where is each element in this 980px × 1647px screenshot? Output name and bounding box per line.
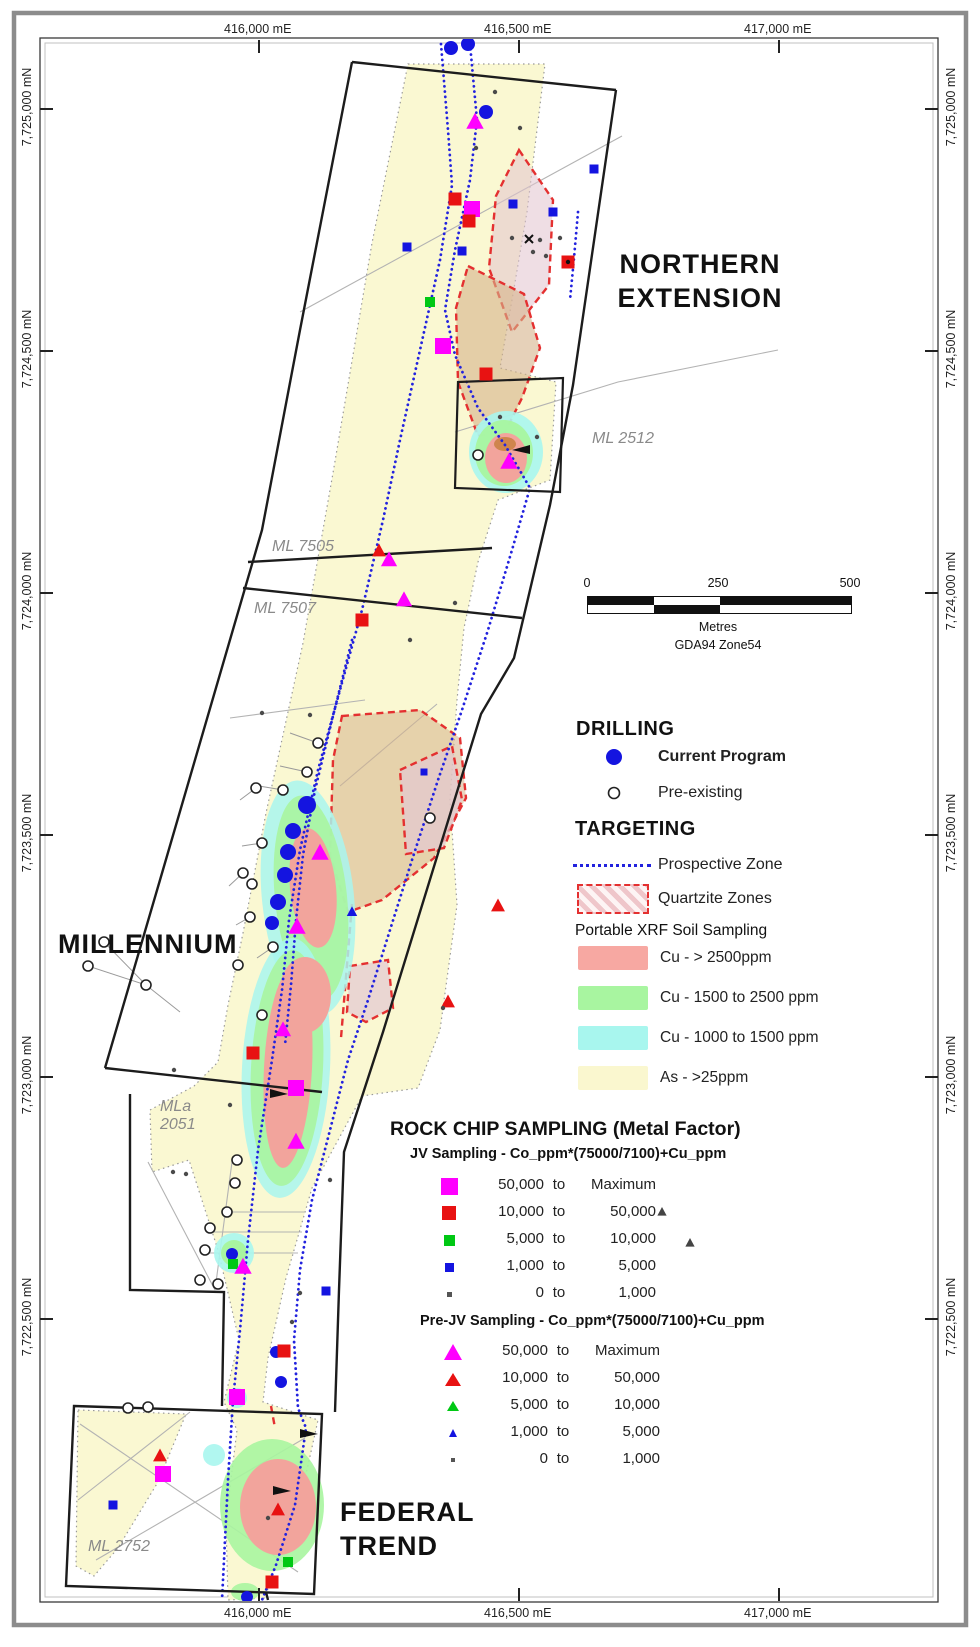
legend-soil-row: Cu - 1500 to 2500 ppm bbox=[578, 986, 898, 1012]
drillhole-preexisting bbox=[278, 785, 288, 795]
range-joiner: to bbox=[550, 1369, 576, 1386]
rock-chip-prejv-marker bbox=[685, 1238, 694, 1247]
top-easting-label: 416,500 mE bbox=[484, 22, 551, 36]
range-joiner: to bbox=[550, 1423, 576, 1440]
left-northing-tick bbox=[40, 834, 53, 836]
right-northing-label: 7,725,000 mN bbox=[944, 66, 958, 148]
low-grade-sample-marker bbox=[558, 236, 562, 240]
triangle-glyph bbox=[444, 1344, 462, 1360]
rock-chip-jv-marker bbox=[155, 1466, 171, 1482]
square-glyph bbox=[445, 1263, 454, 1272]
top-easting-tick bbox=[518, 40, 520, 53]
lease-label-ml7507: ML 7507 bbox=[254, 600, 316, 618]
drillhole-current bbox=[270, 894, 286, 910]
left-northing-label: 7,724,000 mN bbox=[20, 550, 34, 632]
exploration-map-figure: 416,000 mE416,000 mE416,500 mE416,500 mE… bbox=[0, 0, 980, 1647]
rock-chip-jv-marker bbox=[283, 1557, 293, 1567]
low-grade-sample-marker bbox=[308, 713, 312, 717]
lease-label-ml2512: ML 2512 bbox=[592, 430, 654, 448]
legend-square-row: 1,000to5,000 bbox=[432, 1255, 672, 1282]
drillhole-preexisting bbox=[232, 1155, 242, 1165]
rock-chip-jv-marker bbox=[435, 338, 451, 354]
drillhole-current bbox=[277, 867, 293, 883]
soil-swatch bbox=[578, 1026, 648, 1050]
square-glyph bbox=[447, 1292, 452, 1297]
range-min: 5,000 bbox=[468, 1230, 544, 1247]
drillhole-preexisting bbox=[230, 1178, 240, 1188]
rock-chip-jv-marker bbox=[480, 368, 493, 381]
lease-label-ml7505: ML 7505 bbox=[272, 538, 334, 556]
drillhole-preexisting bbox=[247, 879, 257, 889]
drillhole-current bbox=[241, 1591, 253, 1603]
legend-drilling-title: DRILLING bbox=[576, 718, 674, 741]
drillhole-current bbox=[280, 844, 296, 860]
left-northing-tick bbox=[40, 108, 53, 110]
drillhole-current bbox=[226, 1248, 238, 1260]
low-grade-sample-marker bbox=[172, 1068, 176, 1072]
legend-soil-row: As - >25ppm bbox=[578, 1066, 898, 1092]
rock-chip-jv-marker bbox=[322, 1287, 331, 1296]
range-max: 50,000 bbox=[578, 1369, 660, 1386]
right-northing-label: 7,723,000 mN bbox=[944, 1034, 958, 1116]
right-northing-label: 7,724,000 mN bbox=[944, 550, 958, 632]
low-grade-sample-marker bbox=[290, 1320, 294, 1324]
range-max: 50,000 bbox=[574, 1203, 656, 1220]
square-glyph bbox=[441, 1178, 458, 1195]
drillhole-preexisting bbox=[83, 961, 93, 971]
range-min: 0 bbox=[472, 1450, 548, 1467]
legend-soil-row: Cu - > 2500ppm bbox=[578, 946, 898, 972]
low-grade-sample-marker bbox=[184, 1172, 188, 1176]
triangle-glyph bbox=[445, 1373, 461, 1386]
drillhole-preexisting bbox=[205, 1223, 215, 1233]
rock-chip-jv-marker bbox=[403, 243, 412, 252]
low-grade-sample-marker bbox=[538, 238, 542, 242]
right-northing-label: 7,724,500 mN bbox=[944, 308, 958, 390]
square-glyph bbox=[442, 1206, 456, 1220]
legend-square-row: 50,000toMaximum bbox=[432, 1174, 672, 1201]
low-grade-sample-marker bbox=[171, 1170, 175, 1174]
left-northing-label: 7,725,000 mN bbox=[20, 66, 34, 148]
triangle-symbol bbox=[436, 1340, 470, 1364]
legend-jv-subtitle: JV Sampling - Co_ppm*(75000/7100)+Cu_ppm bbox=[410, 1146, 726, 1162]
soil-swatch bbox=[578, 986, 648, 1010]
triangle-symbol bbox=[436, 1421, 470, 1445]
range-max: 5,000 bbox=[578, 1423, 660, 1440]
square-symbol bbox=[432, 1255, 466, 1279]
low-grade-sample-marker bbox=[493, 90, 497, 94]
triangle-glyph bbox=[451, 1458, 455, 1462]
prospective-zone-symbol bbox=[573, 864, 651, 867]
square-glyph bbox=[444, 1235, 455, 1246]
legend-square-row: 5,000to10,000 bbox=[432, 1228, 672, 1255]
soil-swatch bbox=[578, 946, 648, 970]
rock-chip-jv-marker bbox=[421, 769, 428, 776]
low-grade-sample-marker bbox=[441, 1006, 445, 1010]
range-max: 10,000 bbox=[578, 1396, 660, 1413]
legend-quartzite-zones: Quartzite Zones bbox=[658, 890, 772, 908]
top-easting-label: 417,000 mE bbox=[744, 22, 811, 36]
rock-chip-jv-marker bbox=[463, 215, 476, 228]
range-max: 10,000 bbox=[574, 1230, 656, 1247]
triangle-symbol bbox=[436, 1448, 470, 1472]
right-northing-tick bbox=[925, 108, 938, 110]
rock-chip-jv-marker bbox=[229, 1389, 245, 1405]
drillhole-preexisting bbox=[251, 783, 261, 793]
low-grade-sample-marker bbox=[518, 126, 522, 130]
drillhole-current bbox=[298, 796, 316, 814]
scale-bar-graphic bbox=[587, 596, 852, 614]
range-joiner: to bbox=[550, 1450, 576, 1467]
rock-chip-jv-marker bbox=[266, 1576, 279, 1589]
preexisting-symbol bbox=[609, 788, 620, 799]
soil-swatch-label: Cu - 1500 to 2500 ppm bbox=[660, 989, 819, 1007]
drillhole-preexisting bbox=[473, 450, 483, 460]
rock-chip-jv-marker bbox=[288, 1080, 304, 1096]
low-grade-sample-marker bbox=[498, 415, 502, 419]
area-label-trend: TREND bbox=[340, 1530, 475, 1564]
area-label-millennium: MILLENNIUM bbox=[58, 928, 237, 962]
range-max: 1,000 bbox=[574, 1284, 656, 1301]
range-joiner: to bbox=[546, 1176, 572, 1193]
drillhole-preexisting bbox=[213, 1279, 223, 1289]
scale-datum: GDA94 Zone54 bbox=[675, 638, 762, 652]
range-joiner: to bbox=[550, 1342, 576, 1359]
lease-label-ml2752: ML 2752 bbox=[88, 1538, 150, 1556]
drillhole-preexisting bbox=[268, 942, 278, 952]
legend-soil-title: Portable XRF Soil Sampling bbox=[575, 922, 767, 940]
triangle-glyph bbox=[449, 1429, 457, 1437]
square-symbol bbox=[432, 1174, 466, 1198]
area-label-federal: FEDERAL bbox=[340, 1496, 475, 1530]
range-min: 10,000 bbox=[468, 1203, 544, 1220]
low-grade-sample-marker bbox=[453, 601, 457, 605]
rock-chip-jv-marker bbox=[449, 193, 462, 206]
rock-chip-jv-marker bbox=[109, 1501, 118, 1510]
range-max: Maximum bbox=[574, 1176, 656, 1193]
range-max: 5,000 bbox=[574, 1257, 656, 1274]
low-grade-sample-marker bbox=[260, 711, 264, 715]
soil-swatch-label: As - >25ppm bbox=[660, 1069, 748, 1087]
legend-triangle-row: 10,000to50,000 bbox=[436, 1367, 676, 1394]
soil-swatch-label: Cu - > 2500ppm bbox=[660, 949, 772, 967]
low-grade-sample-marker bbox=[328, 1178, 332, 1182]
low-grade-sample-marker bbox=[228, 1103, 232, 1107]
range-joiner: to bbox=[546, 1257, 572, 1274]
current-program-symbol bbox=[606, 749, 622, 765]
drillhole-preexisting bbox=[141, 980, 151, 990]
right-northing-label: 7,723,500 mN bbox=[944, 792, 958, 874]
legend-triangle-row: 50,000toMaximum bbox=[436, 1340, 676, 1367]
square-symbol bbox=[432, 1201, 466, 1225]
drillhole-preexisting bbox=[143, 1402, 153, 1412]
left-northing-label: 7,723,000 mN bbox=[20, 1034, 34, 1116]
legend-triangle-row: 0to1,000 bbox=[436, 1448, 676, 1475]
top-easting-tick bbox=[778, 40, 780, 53]
drillhole-preexisting bbox=[425, 813, 435, 823]
left-northing-label: 7,722,500 mN bbox=[20, 1276, 34, 1358]
low-grade-sample-marker bbox=[266, 1516, 270, 1520]
range-min: 50,000 bbox=[468, 1176, 544, 1193]
low-grade-sample-marker bbox=[566, 260, 570, 264]
drillhole-preexisting bbox=[123, 1403, 133, 1413]
drillhole-current bbox=[479, 105, 493, 119]
scale-unit: Metres bbox=[699, 620, 737, 634]
square-symbol bbox=[432, 1228, 466, 1252]
left-northing-label: 7,723,500 mN bbox=[20, 792, 34, 874]
range-min: 5,000 bbox=[472, 1396, 548, 1413]
bottom-easting-tick bbox=[258, 1588, 260, 1601]
rock-chip-jv-marker bbox=[509, 200, 518, 209]
drillhole-preexisting bbox=[222, 1207, 232, 1217]
bottom-easting-label: 416,000 mE bbox=[224, 1606, 291, 1620]
left-northing-tick bbox=[40, 1318, 53, 1320]
drillhole-preexisting bbox=[245, 912, 255, 922]
rock-chip-jv-marker bbox=[247, 1047, 260, 1060]
range-min: 1,000 bbox=[472, 1423, 548, 1440]
drillhole-preexisting bbox=[257, 1010, 267, 1020]
legend-preexisting: Pre-existing bbox=[658, 784, 742, 802]
left-northing-tick bbox=[40, 1076, 53, 1078]
range-min: 0 bbox=[468, 1284, 544, 1301]
legend-square-row: 10,000to50,000 bbox=[432, 1201, 672, 1228]
legend-triangle-row: 5,000to10,000 bbox=[436, 1394, 676, 1421]
range-max: Maximum bbox=[578, 1342, 660, 1359]
right-northing-tick bbox=[925, 834, 938, 836]
rock-chip-jv-marker bbox=[549, 208, 558, 217]
soil-swatch bbox=[578, 1066, 648, 1090]
triangle-symbol bbox=[436, 1367, 470, 1391]
left-northing-tick bbox=[40, 350, 53, 352]
rock-chip-jv-marker bbox=[278, 1345, 291, 1358]
bottom-easting-tick bbox=[518, 1588, 520, 1601]
right-northing-label: 7,722,500 mN bbox=[944, 1276, 958, 1358]
right-northing-tick bbox=[925, 350, 938, 352]
legend-prejv-subtitle: Pre-JV Sampling - Co_ppm*(75000/7100)+Cu… bbox=[420, 1313, 765, 1329]
low-grade-sample-marker bbox=[510, 236, 514, 240]
area-label-northern-extension: NORTHERN EXTENSION bbox=[600, 248, 800, 316]
legend-soil-row: Cu - 1000 to 1500 ppm bbox=[578, 1026, 898, 1052]
low-grade-sample-marker bbox=[408, 638, 412, 642]
rock-chip-jv-marker bbox=[590, 165, 599, 174]
legend-triangle-row: 1,000to5,000 bbox=[436, 1421, 676, 1448]
range-min: 50,000 bbox=[472, 1342, 548, 1359]
range-max: 1,000 bbox=[578, 1450, 660, 1467]
left-northing-label: 7,724,500 mN bbox=[20, 308, 34, 390]
right-northing-tick bbox=[925, 1076, 938, 1078]
scale-tick-label: 250 bbox=[708, 576, 729, 590]
right-northing-tick bbox=[925, 1318, 938, 1320]
drillhole-current bbox=[461, 37, 475, 51]
right-northing-tick bbox=[925, 592, 938, 594]
range-joiner: to bbox=[546, 1284, 572, 1301]
low-grade-sample-marker bbox=[298, 1291, 302, 1295]
low-grade-sample-marker bbox=[531, 250, 535, 254]
square-symbol bbox=[432, 1282, 466, 1306]
legend-square-row: 0to1,000 bbox=[432, 1282, 672, 1309]
scale-tick-label: 0 bbox=[584, 576, 591, 590]
drillhole-preexisting bbox=[257, 838, 267, 848]
soil-swatch-label: Cu - 1000 to 1500 ppm bbox=[660, 1029, 819, 1047]
bottom-easting-tick bbox=[778, 1588, 780, 1601]
drillhole-preexisting bbox=[200, 1245, 210, 1255]
rock-chip-jv-marker bbox=[356, 614, 369, 627]
legend-prospective-zone: Prospective Zone bbox=[658, 856, 783, 874]
range-joiner: to bbox=[546, 1203, 572, 1220]
scale-tick-label: 500 bbox=[840, 576, 861, 590]
rock-chip-prejv-marker bbox=[491, 899, 505, 912]
range-min: 10,000 bbox=[472, 1369, 548, 1386]
low-grade-sample-marker bbox=[544, 254, 548, 258]
left-northing-tick bbox=[40, 592, 53, 594]
drillhole-current bbox=[444, 41, 458, 55]
top-easting-label: 416,000 mE bbox=[224, 22, 291, 36]
quartzite-zone-symbol bbox=[577, 884, 649, 914]
drillhole-preexisting bbox=[238, 868, 248, 878]
range-min: 1,000 bbox=[468, 1257, 544, 1274]
drilling-symbols bbox=[594, 744, 634, 814]
triangle-symbol bbox=[436, 1394, 470, 1418]
drillhole-current bbox=[285, 823, 301, 839]
range-joiner: to bbox=[546, 1230, 572, 1247]
rock-chip-jv-marker bbox=[458, 247, 467, 256]
bottom-easting-label: 417,000 mE bbox=[744, 1606, 811, 1620]
rock-chip-jv-marker bbox=[228, 1259, 238, 1269]
top-easting-tick bbox=[258, 40, 260, 53]
legend-targeting-title: TARGETING bbox=[575, 818, 696, 841]
drillhole-current bbox=[265, 916, 279, 930]
drillhole-preexisting bbox=[313, 738, 323, 748]
rock-chip-jv-marker bbox=[425, 297, 435, 307]
low-grade-sample-marker bbox=[474, 146, 478, 150]
legend-rockchip-title: ROCK CHIP SAMPLING (Metal Factor) bbox=[390, 1118, 741, 1141]
drillhole-current bbox=[275, 1376, 287, 1388]
triangle-glyph bbox=[447, 1401, 459, 1411]
low-grade-sample-marker bbox=[535, 435, 539, 439]
drillhole-preexisting bbox=[302, 767, 312, 777]
bottom-easting-label: 416,500 mE bbox=[484, 1606, 551, 1620]
drillhole-preexisting bbox=[195, 1275, 205, 1285]
range-joiner: to bbox=[550, 1396, 576, 1413]
lease-label-mla2051: MLa 2051 bbox=[160, 1098, 196, 1135]
legend-current-program: Current Program bbox=[658, 748, 786, 766]
